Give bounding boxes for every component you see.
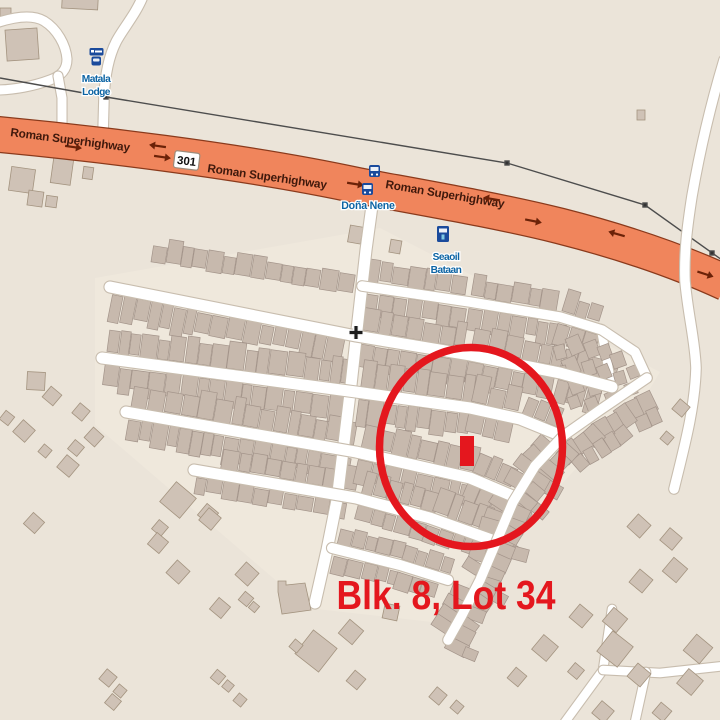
svg-text:Matala: Matala [82,74,111,85]
svg-text:301: 301 [176,155,197,169]
svg-text:Lodge: Lodge [82,87,111,98]
svg-text:Doña Nene: Doña Nene [341,200,395,212]
svg-text:Bataan: Bataan [431,265,462,276]
svg-text:Blk. 8, Lot 34: Blk. 8, Lot 34 [337,572,556,618]
svg-text:Seaoil: Seaoil [433,252,460,263]
